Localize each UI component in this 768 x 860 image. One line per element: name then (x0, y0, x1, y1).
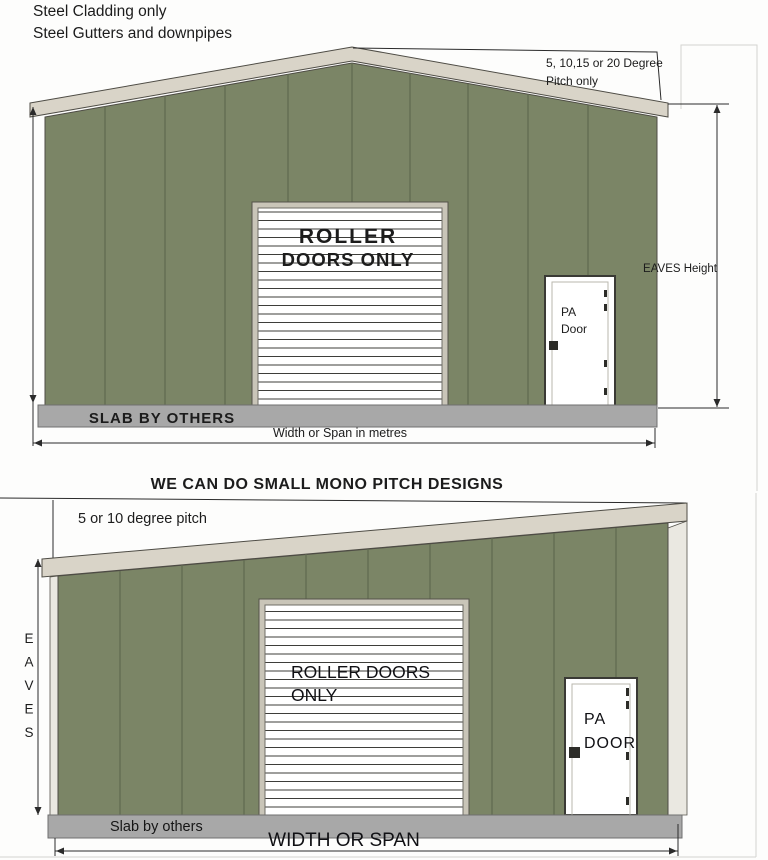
bottom-pa-door-label-line1: PA (584, 711, 606, 728)
top-width-dimension: Width or Span in metres (33, 426, 655, 448)
top-width-label: Width or Span in metres (273, 426, 407, 440)
bottom-eaves-letter: V (24, 678, 33, 693)
top-pa-door-hinge (604, 290, 607, 297)
top-gable-diagram: Steel Cladding only Steel Gutters and do… (30, 3, 758, 491)
bottom-pa-door: PA DOOR (565, 678, 637, 815)
bottom-pa-door-label-line2: DOOR (584, 735, 636, 752)
top-pa-door-hinge (604, 360, 607, 367)
bottom-mono-pitch-diagram: WE CAN DO SMALL MONO PITCH DESIGNS 5 or … (0, 476, 756, 857)
shed-design-sheet: Steel Cladding only Steel Gutters and do… (0, 0, 768, 860)
top-pa-door-handle (549, 341, 558, 350)
bottom-eaves-letter: A (24, 655, 33, 670)
bottom-eaves-letter: E (24, 631, 33, 646)
top-slab-label: SLAB BY OTHERS (89, 410, 235, 427)
bottom-pa-door-hinge (626, 752, 629, 760)
top-pa-door-hinge (604, 304, 607, 311)
bottom-eaves-dimension: E A V E S (24, 559, 41, 815)
top-pa-door-label-line2: Door (561, 322, 587, 336)
top-pitch-note-line2: Pitch only (546, 74, 598, 88)
bottom-title: WE CAN DO SMALL MONO PITCH DESIGNS (151, 476, 504, 493)
top-roller-door: ROLLER DOORS ONLY (252, 202, 448, 405)
bottom-pa-door-hinge (626, 797, 629, 805)
top-roller-door-label-line1: ROLLER (299, 225, 397, 248)
bottom-eaves-letter: S (24, 725, 33, 740)
shed-diagrams-canvas: Steel Cladding only Steel Gutters and do… (0, 0, 768, 860)
bottom-pa-door-hinge (626, 701, 629, 709)
bottom-left-corner-trim (50, 576, 58, 815)
bottom-slab-label: Slab by others (110, 819, 203, 835)
top-eaves-height-label: EAVES Height (643, 263, 718, 275)
top-roller-door-label-line2: DOORS ONLY (282, 249, 415, 270)
header-line1: Steel Cladding only (33, 3, 167, 20)
bottom-pa-door-handle (569, 747, 580, 758)
bottom-pitch-note: 5 or 10 degree pitch (78, 511, 207, 527)
bottom-eaves-letter: E (24, 702, 33, 717)
top-left-dimension-line (30, 107, 37, 446)
bottom-roller-door-label-line2: ONLY (291, 685, 338, 705)
bottom-pa-door-hinge (626, 688, 629, 696)
bottom-right-corner-trim (668, 521, 687, 815)
bottom-roller-door-label-line1: ROLLER DOORS (291, 662, 430, 682)
top-pa-door-label-line1: PA (561, 305, 576, 319)
bottom-roller-door: ROLLER DOORS ONLY (259, 599, 469, 815)
header-line2: Steel Gutters and downpipes (33, 25, 232, 42)
top-pitch-note-line1: 5, 10,15 or 20 Degree (546, 56, 663, 70)
top-pa-door: PA Door (545, 276, 615, 408)
bottom-width-label: WIDTH OR SPAN (268, 830, 420, 851)
bottom-pitch-reference-line (0, 498, 686, 503)
top-pa-door-hinge (604, 388, 607, 395)
